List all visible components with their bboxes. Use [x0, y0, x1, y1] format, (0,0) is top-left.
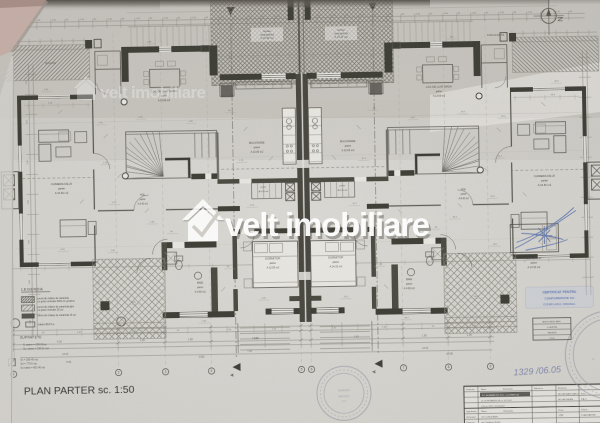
- svg-text:velt imobiliare: velt imobiliare: [100, 83, 205, 102]
- svg-text:velt imobiliare: velt imobiliare: [225, 206, 430, 243]
